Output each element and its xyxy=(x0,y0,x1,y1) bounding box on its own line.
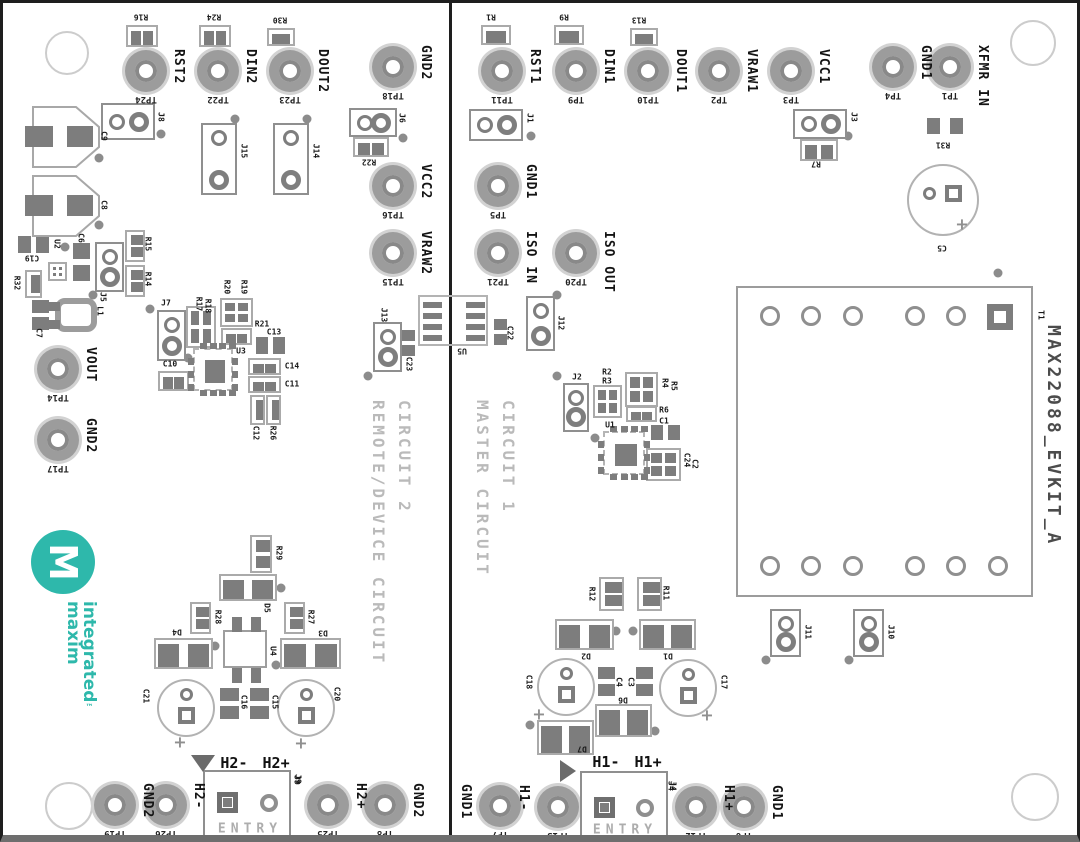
via-dot xyxy=(146,305,155,314)
header-J4: H1- H1+ xyxy=(592,753,661,771)
tp-designator-TP8: TP8 xyxy=(367,828,403,838)
label-R6: R6 xyxy=(659,406,669,415)
smd-pad xyxy=(605,582,622,593)
smd-pad xyxy=(32,300,49,313)
ic-pin xyxy=(644,467,650,474)
polarity-plus: + xyxy=(955,215,968,234)
transformer-pin xyxy=(760,306,780,326)
jumper-pin xyxy=(568,390,584,406)
component-D2 xyxy=(555,619,614,650)
ecap-ring xyxy=(560,667,573,680)
label-R17: R17 xyxy=(195,297,204,311)
logo-word-integrated: integrated™ xyxy=(79,601,99,711)
label-J8: J8 xyxy=(157,112,166,122)
smd-pad xyxy=(158,644,179,667)
label-J5: J5 xyxy=(99,292,108,302)
label-C4: C4 xyxy=(615,677,624,687)
tp-net-label-TP19: GND2 xyxy=(140,783,155,818)
component-C1 xyxy=(651,425,680,440)
label-D3: D3 xyxy=(318,629,328,638)
polarity-plus: + xyxy=(532,705,545,724)
ic-pin xyxy=(232,371,238,378)
tp-designator-TP18: TP18 xyxy=(375,90,411,100)
label-C1: C1 xyxy=(659,417,669,426)
jumper-J5 xyxy=(95,242,124,292)
component-C6 xyxy=(73,243,90,281)
smd-pad xyxy=(402,345,415,356)
smd-pad xyxy=(238,314,248,322)
jumper-J12 xyxy=(526,296,555,351)
smd-pad xyxy=(237,334,247,343)
ic-pin xyxy=(210,390,217,396)
smd-pad xyxy=(627,710,648,735)
jumper-pin xyxy=(801,116,817,132)
smd-pad xyxy=(53,267,56,270)
label-C13: C13 xyxy=(267,328,281,337)
smd-pad xyxy=(541,726,562,753)
tp-net-label-TP22: DIN2 xyxy=(243,49,258,84)
label-C17: C17 xyxy=(720,675,729,689)
jumper-J6 xyxy=(349,108,397,137)
component-R30 xyxy=(267,28,295,46)
jumper-pin xyxy=(109,114,125,130)
smd-pad xyxy=(643,391,653,402)
component-U2AUX xyxy=(48,262,67,281)
testpoint-TP1 xyxy=(929,46,971,88)
ic-pin xyxy=(644,441,650,448)
component-R15 xyxy=(125,230,145,262)
component-R11 xyxy=(637,577,662,611)
smd-pad xyxy=(18,236,31,253)
component-C3 xyxy=(636,667,653,696)
label-D1: D1 xyxy=(663,652,673,661)
tp-designator-TP15: TP15 xyxy=(375,276,411,286)
label-D5: D5 xyxy=(263,603,272,613)
pcb-board: CIRCUIT 2 REMOTE/DEVICE CIRCUIT CIRCUIT … xyxy=(0,0,1080,842)
connector-round-pad xyxy=(636,799,654,817)
component-R7 xyxy=(800,139,838,161)
transformer-pin xyxy=(760,556,780,576)
smd-pad xyxy=(25,195,53,216)
tp-designator-TP24: TP24 xyxy=(128,94,164,104)
ic-pin xyxy=(232,358,238,365)
smd-pad xyxy=(273,337,285,354)
jumper-pin xyxy=(371,113,391,133)
label-C3: C3 xyxy=(627,677,636,687)
component-R1 xyxy=(481,25,511,45)
label-R29: R29 xyxy=(275,546,284,560)
jumper-pin xyxy=(102,249,118,265)
ic-pin xyxy=(621,474,628,480)
smd-pad xyxy=(651,466,662,476)
testpoint-TP19 xyxy=(94,784,136,826)
label-U1: U1 xyxy=(605,421,615,430)
tp-designator-TP13: TP13 xyxy=(540,830,576,840)
label-C10: C10 xyxy=(163,360,177,369)
smd-pad xyxy=(643,582,660,593)
label-C5: C5 xyxy=(937,244,947,253)
component-D4 xyxy=(154,638,213,669)
component-R24 xyxy=(199,25,231,47)
label-R12: R12 xyxy=(588,587,597,601)
tp-net-label-TP21: ISO IN xyxy=(523,231,538,284)
tp-designator-TP26: TP26 xyxy=(148,828,184,838)
jumper-pin xyxy=(211,130,227,146)
smd-pad xyxy=(204,31,214,45)
tp-designator-TP23: TP23 xyxy=(272,94,308,104)
ic-pin xyxy=(631,474,638,480)
smd-pad xyxy=(636,684,653,696)
tp-net-label-TP1: XFMR IN xyxy=(975,45,990,107)
smd-pad xyxy=(671,625,692,648)
label-J7: J7 xyxy=(161,299,171,308)
tp-net-label-TP20: ISO OUT xyxy=(601,231,616,293)
smd-pad xyxy=(143,31,153,45)
label-R18: R18 xyxy=(204,299,213,313)
ic-pin xyxy=(621,426,628,432)
ic-pin xyxy=(219,343,226,349)
circuit1-title-line1: CIRCUIT 1 xyxy=(495,400,521,577)
label-C16: C16 xyxy=(240,695,249,709)
component-R13 xyxy=(630,28,658,46)
tp-net-label-TP9: DIN1 xyxy=(601,49,616,84)
label-C7: C7 xyxy=(35,328,44,338)
testpoint-TP18 xyxy=(372,46,414,88)
smd-pad xyxy=(805,145,817,159)
tp-designator-TP10: TP10 xyxy=(630,94,666,104)
ecap-ring xyxy=(682,668,695,681)
label-D4: D4 xyxy=(172,628,182,637)
component-C14 xyxy=(248,358,281,375)
smd-pad xyxy=(250,706,269,719)
smd-pad xyxy=(59,267,62,270)
ecap-square-pad xyxy=(558,686,575,703)
testpoint-TP4 xyxy=(872,46,914,88)
smd-pad xyxy=(402,330,415,341)
component-C19 xyxy=(18,236,49,253)
via-dot xyxy=(364,372,373,381)
ic-pin xyxy=(232,668,242,683)
polarity-plus: + xyxy=(294,734,307,753)
smd-pad xyxy=(631,412,641,420)
component-C4 xyxy=(598,667,615,696)
label-R14: R14 xyxy=(144,272,153,286)
jumper-pin xyxy=(477,117,493,133)
label-J12: J12 xyxy=(557,316,566,330)
smd-pad xyxy=(31,284,40,293)
tp-net-label-TP24: RST2 xyxy=(171,49,186,84)
ic-pin xyxy=(598,467,604,474)
header-J9: H2- H2+ xyxy=(220,754,289,772)
component-C16 xyxy=(220,688,239,719)
jumper-pin xyxy=(859,632,879,652)
transformer-pin xyxy=(843,306,863,326)
entry-text-J9: ENTRY xyxy=(218,822,282,837)
jumper-pin xyxy=(497,115,517,135)
testpoint-TP9 xyxy=(555,50,597,92)
smd-pad xyxy=(188,644,209,667)
via-dot xyxy=(553,372,562,381)
label-C11: C11 xyxy=(285,380,299,389)
jumper-pin xyxy=(778,616,794,632)
component-L1 xyxy=(55,298,97,332)
connector-square-pad-core xyxy=(600,803,609,812)
smd-pad xyxy=(256,337,268,354)
via-dot xyxy=(994,269,1003,278)
component-D3 xyxy=(280,638,341,669)
ic-pin xyxy=(423,302,442,308)
ic-pin xyxy=(423,335,442,341)
tp-designator-TP19: TP19 xyxy=(97,828,133,838)
smd-pad xyxy=(256,400,263,410)
jumper-J8 xyxy=(101,103,155,140)
component-D5 xyxy=(219,574,277,601)
ecap-ring xyxy=(180,688,193,701)
tp-net-label-TP10: DOUT1 xyxy=(673,49,688,93)
transformer-pin1-square xyxy=(987,304,1013,330)
circuit1-title: CIRCUIT 1 MASTER CIRCUIT xyxy=(469,400,521,577)
tp-designator-TP25: TP25 xyxy=(310,828,346,838)
tp-net-label-TP6: GND1 xyxy=(769,785,784,820)
testpoint-TP17 xyxy=(37,419,79,461)
smd-pad xyxy=(496,31,506,43)
component-U1 xyxy=(603,431,645,475)
label-U3: U3 xyxy=(236,347,246,356)
label-R7: R7 xyxy=(811,160,821,169)
mounting-hole-2 xyxy=(1010,20,1056,66)
ic-pin xyxy=(641,474,648,480)
ic-pin xyxy=(466,313,485,319)
component-T1 xyxy=(736,286,1033,597)
maxim-logo-icon: M xyxy=(31,530,95,594)
jumper-pin xyxy=(281,170,301,190)
smd-pad xyxy=(191,329,199,343)
smd-pad xyxy=(599,710,620,735)
smd-pad xyxy=(609,403,617,413)
label-L1: L1 xyxy=(96,306,105,316)
label-U2: U2 xyxy=(53,239,62,249)
label-R20: R20 xyxy=(223,280,232,294)
polarity-triangle-icon xyxy=(191,755,215,772)
smd-pad xyxy=(31,275,40,284)
via-dot xyxy=(157,130,166,139)
jumper-pin xyxy=(776,632,796,652)
testpoint-TP14 xyxy=(37,348,79,390)
smd-pad xyxy=(73,243,90,259)
smd-pad xyxy=(559,31,569,43)
component-C10 xyxy=(158,371,189,391)
label-D7: D7 xyxy=(577,745,587,754)
smd-pad xyxy=(642,412,652,420)
smd-pad xyxy=(927,118,940,134)
jumper-J10 xyxy=(853,609,884,657)
smd-pad xyxy=(36,236,49,253)
smd-pad xyxy=(609,390,617,400)
jumper-pin xyxy=(566,407,586,427)
smd-pad xyxy=(49,320,60,329)
smd-pad xyxy=(643,625,664,648)
smd-pad xyxy=(220,688,239,701)
jumper-pin xyxy=(380,329,396,345)
ecap-ring xyxy=(300,688,313,701)
circuit2-title-line1: CIRCUIT 2 xyxy=(391,400,417,665)
jumper-pin xyxy=(129,112,149,132)
tp-net-label-TP17: GND2 xyxy=(83,418,98,453)
connector-square-pad-core xyxy=(223,798,232,807)
jumper-J2 xyxy=(563,383,589,432)
jumper-pin xyxy=(283,130,299,146)
smd-pad xyxy=(223,580,244,599)
label-R2: R2 xyxy=(602,368,612,377)
component-C12 xyxy=(250,395,265,425)
label-R5: R5 xyxy=(670,381,679,391)
label-D6: D6 xyxy=(618,696,628,705)
transformer-pin xyxy=(801,306,821,326)
testpoint-TP16 xyxy=(372,165,414,207)
testpoint-TP7 xyxy=(479,785,521,827)
tp-net-label-TP14: VOUT xyxy=(83,347,98,382)
label-C15: C15 xyxy=(271,695,280,709)
label-J10: J10 xyxy=(887,625,896,639)
smd-pad xyxy=(131,282,143,292)
tp-net-label-TP18: GND2 xyxy=(418,45,433,80)
component-C11 xyxy=(248,376,281,393)
smd-pad xyxy=(250,688,269,701)
component-C15 xyxy=(250,688,269,719)
jumper-J13 xyxy=(373,322,402,372)
via-dot xyxy=(399,134,408,143)
testpoint-TP13 xyxy=(537,786,579,828)
smd-pad xyxy=(272,410,279,420)
jumper-pin xyxy=(100,267,120,287)
via-dot xyxy=(277,584,286,593)
smd-pad xyxy=(225,303,235,311)
ic-pin xyxy=(598,441,604,448)
ic-pin xyxy=(200,343,207,349)
tp-designator-TP6: TP6 xyxy=(726,830,762,840)
connector-round-pad xyxy=(260,794,278,812)
smd-pad xyxy=(651,453,662,463)
smd-pad xyxy=(220,706,239,719)
label-C21: C21 xyxy=(142,689,151,703)
tp-net-label-TP4: GND1 xyxy=(918,45,933,80)
ic-pin xyxy=(251,668,261,683)
ic-body xyxy=(205,360,226,382)
circuit2-title-line2: REMOTE/DEVICE CIRCUIT xyxy=(365,400,391,665)
smd-pad xyxy=(225,314,235,322)
component-U3 xyxy=(193,348,233,391)
label-C6: C6 xyxy=(77,233,86,243)
testpoint-TP5 xyxy=(477,165,519,207)
label-C12: C12 xyxy=(252,426,261,440)
label-C20: C20 xyxy=(333,687,342,701)
transformer-pin xyxy=(905,556,925,576)
ecap-square-pad xyxy=(945,185,962,202)
jumper-J1 xyxy=(469,109,523,141)
label-J6: J6 xyxy=(398,113,407,123)
jumper-J11 xyxy=(770,609,801,657)
label-R24: R24 xyxy=(207,13,221,22)
component-U5 xyxy=(418,295,488,346)
smd-pad xyxy=(203,329,211,343)
smd-pad xyxy=(216,31,226,45)
label-J3: J3 xyxy=(850,112,859,122)
circuit1-title-line2: MASTER CIRCUIT xyxy=(469,400,495,577)
smd-pad xyxy=(174,377,184,389)
via-dot xyxy=(527,132,536,141)
smd-pad xyxy=(290,607,303,617)
label-R32: R32 xyxy=(13,276,22,290)
ecap-ring xyxy=(923,187,936,200)
tp-designator-TP16: TP16 xyxy=(375,209,411,219)
tp-designator-TP22: TP22 xyxy=(200,94,236,104)
component-R20R19 xyxy=(220,298,253,327)
ic-pin xyxy=(251,617,261,632)
label-R4: R4 xyxy=(661,378,670,388)
tp-designator-TP21: TP21 xyxy=(480,276,516,286)
label-R13: R13 xyxy=(632,16,646,25)
board-title: MAX22088_EVKIT_A xyxy=(1043,325,1064,546)
ecap-square-pad xyxy=(298,707,315,724)
component-D6 xyxy=(595,704,652,737)
smd-pad xyxy=(635,34,644,44)
tp-net-label-TP15: VRAW2 xyxy=(418,231,433,275)
testpoint-TP8 xyxy=(364,784,406,826)
maxim-monogram: M xyxy=(44,543,82,581)
smd-pad xyxy=(67,195,93,216)
testpoint-TP23 xyxy=(269,50,311,92)
smd-pad xyxy=(636,667,653,679)
jumper-pin xyxy=(162,336,182,356)
smd-pad xyxy=(25,126,53,147)
component-R4R5 xyxy=(625,372,658,407)
tp-designator-TP12: TP12 xyxy=(678,830,714,840)
ic-pin xyxy=(229,390,236,396)
ic-pin xyxy=(188,358,194,365)
smd-pad xyxy=(265,382,276,391)
smd-pad xyxy=(598,390,606,400)
label-J2: J2 xyxy=(572,373,582,382)
component-R31 xyxy=(924,114,966,138)
smd-pad xyxy=(598,684,615,696)
transformer-pin xyxy=(988,556,1008,576)
smd-pad xyxy=(372,143,384,155)
entry-text-J4: ENTRY xyxy=(593,823,657,838)
smd-pad xyxy=(131,247,143,257)
testpoint-TP22 xyxy=(197,50,239,92)
label-R9: R9 xyxy=(559,13,569,22)
testpoint-TP12 xyxy=(675,786,717,828)
testpoint-TP2 xyxy=(698,50,740,92)
mounting-hole-3 xyxy=(45,782,93,830)
ic-pin xyxy=(232,617,242,632)
component-D1 xyxy=(639,619,696,650)
component-R22 xyxy=(353,137,389,157)
smd-pad xyxy=(131,270,143,280)
label-C19: C19 xyxy=(25,254,39,263)
smd-pad xyxy=(163,377,173,389)
smd-pad xyxy=(644,34,653,44)
component-C23 xyxy=(402,330,415,356)
ic-pin xyxy=(466,335,485,341)
testpoint-TP15 xyxy=(372,232,414,274)
component-R29 xyxy=(250,535,272,573)
mounting-hole-4 xyxy=(1011,773,1059,821)
polarity-triangle-icon xyxy=(560,760,576,782)
label-C23: C23 xyxy=(405,357,414,371)
tp-net-label-TP25: H2+ xyxy=(353,783,368,809)
smd-pad xyxy=(196,607,209,617)
